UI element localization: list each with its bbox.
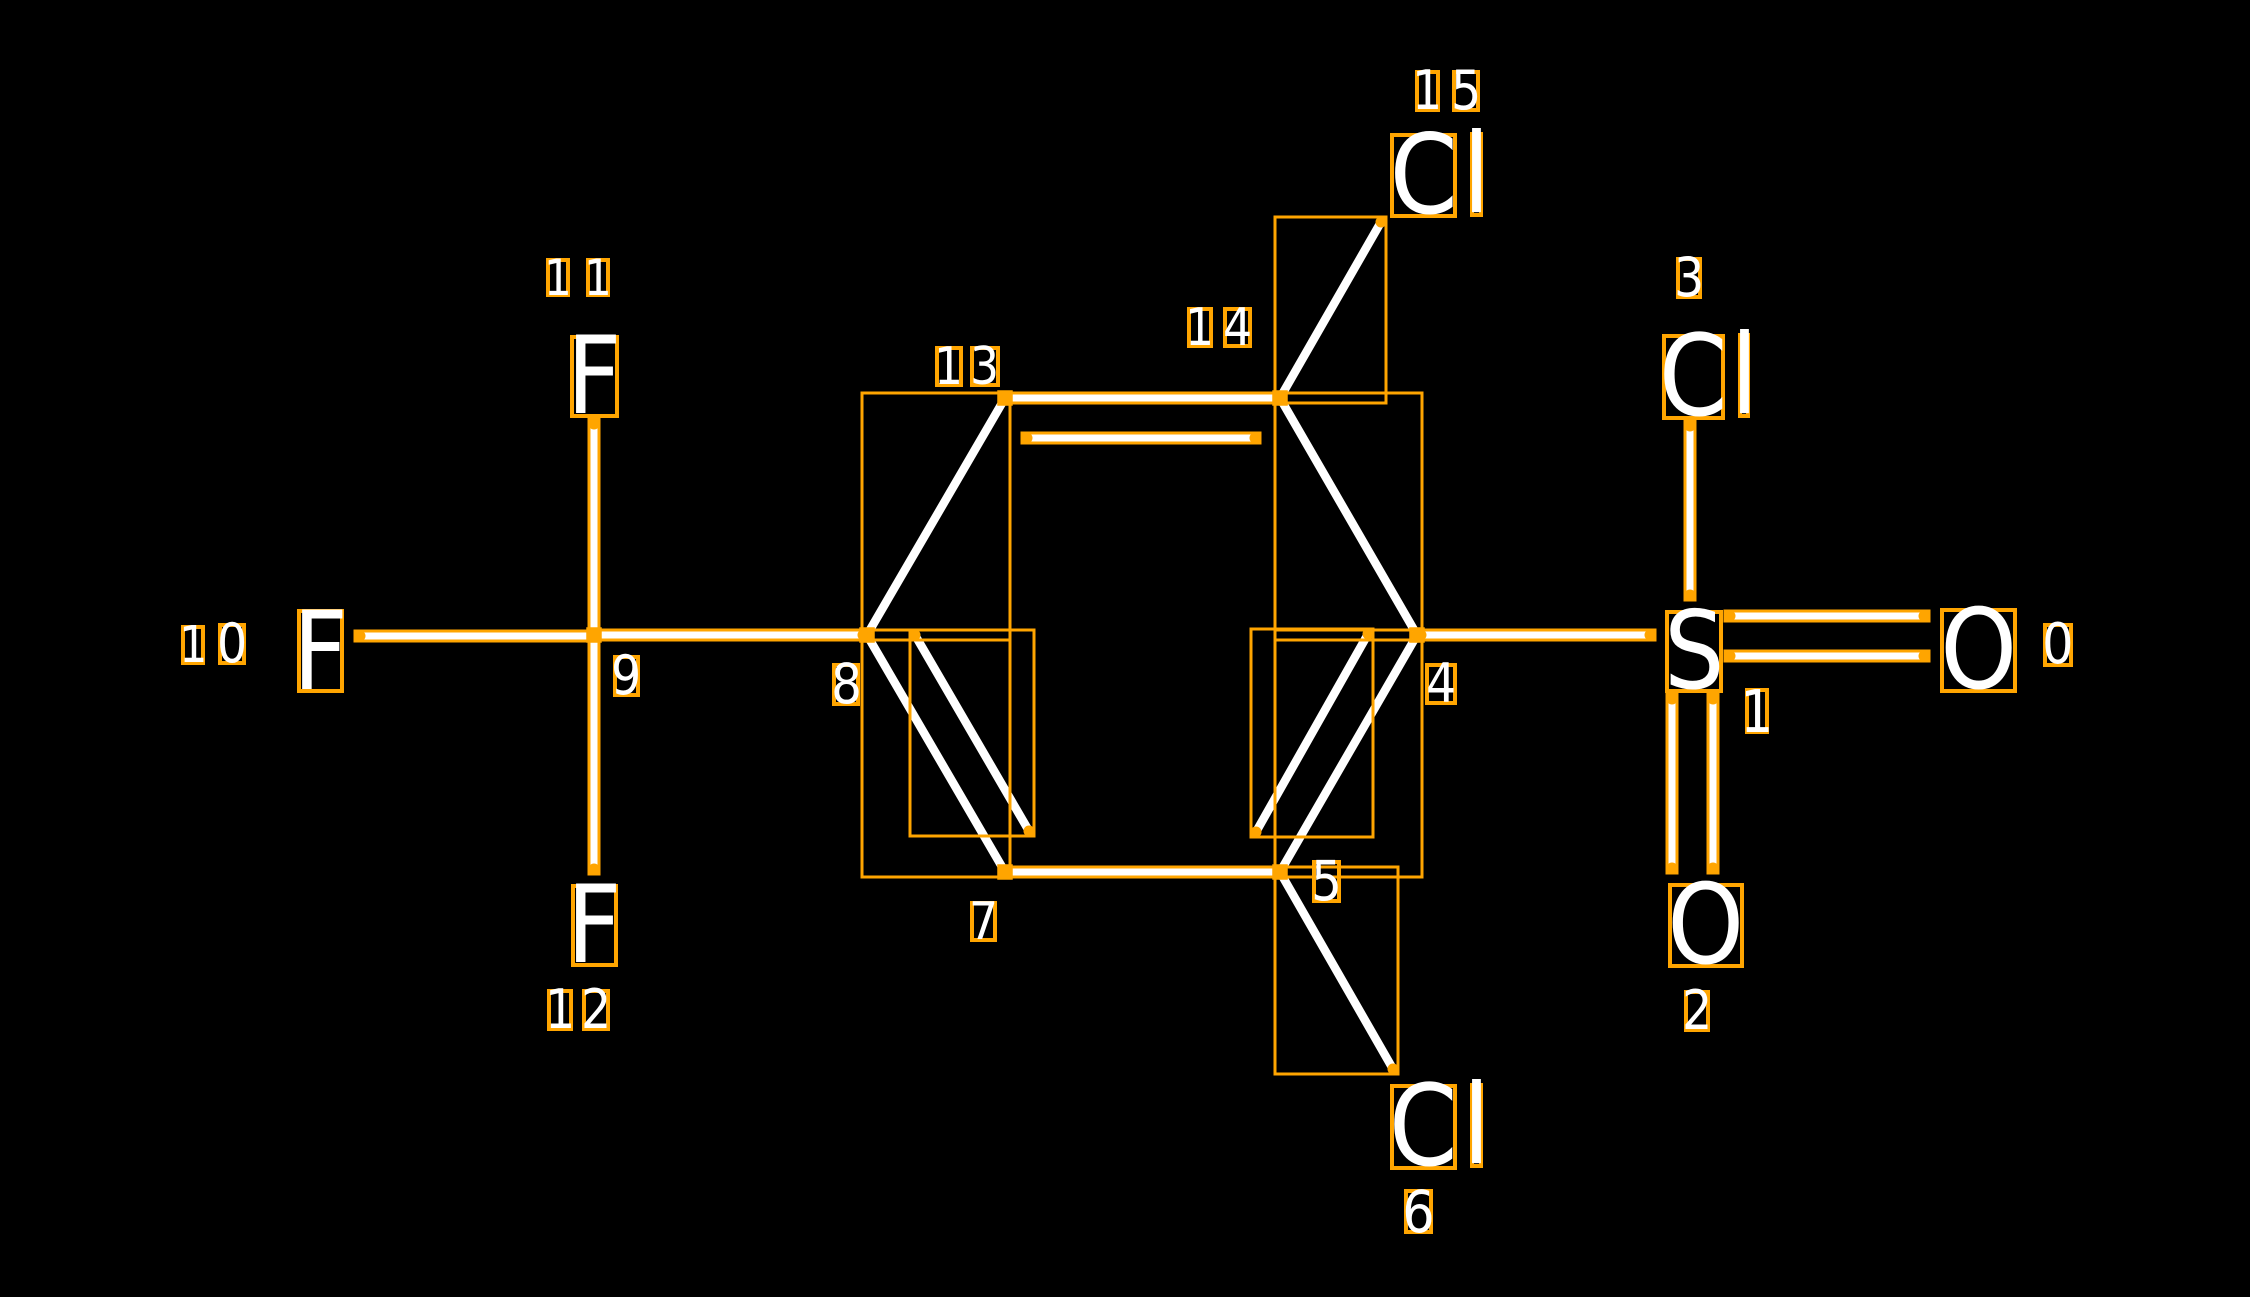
atom-label-Cl-15-1: l [1470, 132, 1483, 217]
atom-index-8-0: 8 [832, 663, 860, 706]
atom-label-Cl-3-1-char: l [1730, 320, 1757, 431]
atom-index-10-1-char: 0 [217, 617, 247, 671]
bond-14-4 [1280, 398, 1417, 635]
bond-endpoint-dot [1024, 826, 1035, 837]
bond-endpoint-dot [1000, 867, 1011, 878]
atom-index-0-0-char: 0 [2042, 617, 2073, 673]
atom-index-10-1: 0 [218, 623, 246, 665]
atom-label-Cl-15-0-char: C [1389, 120, 1457, 231]
bond-endpoint-dot [1725, 651, 1736, 662]
atom-label-Cl-15-0: C [1390, 133, 1457, 218]
atom-index-14-0: 1 [1187, 307, 1213, 348]
atom-label-Cl-6-0-char: C [1389, 1071, 1458, 1183]
bond-endpoint-dot [1919, 651, 1930, 662]
bond-endpoint-dot [1251, 827, 1262, 838]
atom-label-F-10-0: F [297, 609, 344, 693]
atom-index-7-0-char: 7 [969, 896, 998, 948]
atom-label-Cl-3-0: C [1662, 334, 1725, 420]
atom-index-3-0: 3 [1676, 257, 1702, 299]
atom-label-Cl-3-1: l [1738, 333, 1750, 418]
atom-index-14-1-char: 4 [1223, 302, 1252, 354]
atom-index-14-0-char: 1 [1185, 302, 1214, 354]
bond-endpoint-dot [355, 631, 366, 642]
bond-14-15 [1280, 222, 1381, 398]
bond-endpoint-dot [1645, 630, 1656, 641]
atom-label-F-10-0-char: F [293, 597, 348, 706]
atom-index-14-1: 4 [1223, 307, 1252, 348]
atom-index-13-1: 3 [970, 346, 1000, 387]
atom-index-9-0: 9 [613, 655, 640, 697]
atom-index-7-0: 7 [970, 901, 997, 942]
atom-label-F-11-0: F [570, 335, 619, 418]
atom-label-Cl-6-0: C [1390, 1084, 1457, 1170]
atom-index-12-1: 2 [582, 989, 610, 1031]
atom-label-O-2-0-char: O [1668, 870, 1745, 981]
atom-index-12-1-char: 2 [581, 983, 611, 1037]
atom-index-5-0: 5 [1312, 860, 1341, 903]
atom-index-1-0-char: 1 [1740, 682, 1773, 741]
atom-index-1-0: 1 [1745, 688, 1769, 734]
atom-index-0-0: 0 [2043, 623, 2073, 667]
atom-label-S-1-0: S [1665, 610, 1723, 693]
bond-endpoint-dot [1275, 393, 1286, 404]
atom-index-5-0-char: 5 [1311, 854, 1342, 909]
atom-index-13-0-char: 1 [934, 341, 963, 393]
atom-index-6-0: 6 [1404, 1189, 1433, 1234]
bond-endpoint-dot [1000, 393, 1011, 404]
atom-index-10-0: 1 [181, 625, 205, 665]
atom-index-12-0-char: 1 [545, 983, 575, 1037]
bond-endpoint-dot [1275, 867, 1286, 878]
atom-index-11-0: 1 [546, 258, 570, 297]
atom-label-Cl-6-1: l [1470, 1083, 1483, 1168]
atom-index-15-1-char: 5 [1451, 64, 1481, 118]
bond-endpoint-dot [1022, 433, 1033, 444]
atom-index-15-0: 1 [1415, 70, 1440, 112]
atom-index-8-0-char: 8 [831, 657, 862, 712]
atom-label-Cl-15-1-char: l [1463, 119, 1490, 230]
atom-index-4-0: 4 [1425, 663, 1457, 705]
bond-8-7-inner [915, 635, 1029, 831]
atom-label-S-1-0-char: S [1664, 598, 1724, 706]
bond-endpoint-dot [589, 630, 600, 641]
atom-index-11-0-char: 1 [544, 253, 572, 303]
bond-13-8 [867, 398, 1005, 635]
atom-label-O-0-0: O [1940, 608, 2017, 693]
bond-endpoint-dot [1919, 611, 1930, 622]
atom-index-2-0-char: 2 [1682, 984, 1712, 1038]
atom-label-F-12-0: F [571, 884, 618, 967]
atom-index-9-0-char: 9 [611, 649, 641, 703]
atom-index-15-1: 5 [1452, 70, 1480, 112]
atom-index-13-0: 1 [935, 346, 963, 387]
molecule-annotation-canvas: O0S1O2Cl345Cl6789F10F11F121314Cl15 [0, 0, 2250, 1297]
atom-index-12-0: 1 [547, 989, 573, 1031]
atom-label-O-0-0-char: O [1940, 595, 2017, 706]
atom-label-F-11-0-char: F [567, 323, 622, 431]
bond-endpoint-dot [1363, 629, 1374, 640]
bond-endpoint-dot [1250, 433, 1261, 444]
bond-endpoint-dot [1376, 217, 1387, 228]
atom-label-F-12-0-char: F [567, 872, 622, 980]
atom-index-15-0-char: 1 [1412, 64, 1442, 118]
atom-index-13-1-char: 3 [970, 341, 999, 393]
bond-endpoint-dot [858, 630, 869, 641]
atom-index-11-1: 1 [586, 258, 610, 297]
atom-index-2-0: 2 [1684, 990, 1710, 1032]
atom-index-11-1-char: 1 [584, 253, 612, 303]
bond-endpoint-dot [1412, 630, 1423, 641]
atom-index-10-0-char: 1 [179, 620, 208, 671]
atom-index-4-0-char: 4 [1426, 657, 1456, 711]
atom-label-Cl-3-0-char: C [1659, 321, 1728, 433]
atom-label-O-2-0: O [1668, 883, 1744, 968]
bond-endpoint-dot [1725, 611, 1736, 622]
bond-4-5-inner [1256, 634, 1368, 832]
atom-index-6-0-char: 6 [1402, 1183, 1434, 1241]
atom-index-3-0-char: 3 [1674, 251, 1704, 305]
atom-label-Cl-6-1-char: l [1463, 1070, 1490, 1181]
bond-endpoint-dot [910, 630, 921, 641]
